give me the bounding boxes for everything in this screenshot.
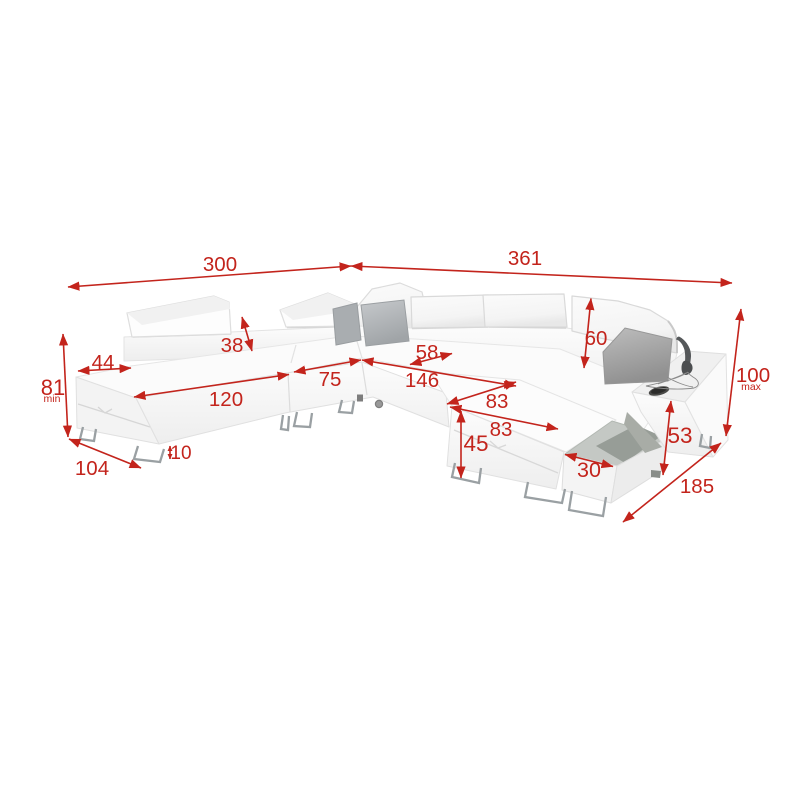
svg-text:185: 185: [680, 475, 714, 498]
svg-text:min: min: [44, 393, 61, 405]
svg-text:60: 60: [585, 327, 608, 350]
svg-text:104: 104: [75, 457, 109, 480]
svg-text:83: 83: [490, 418, 513, 441]
svg-text:max: max: [741, 381, 762, 393]
svg-text:30: 30: [577, 458, 601, 482]
svg-text:75: 75: [319, 368, 342, 391]
svg-text:44: 44: [92, 351, 115, 374]
svg-text:146: 146: [405, 369, 439, 392]
svg-text:10: 10: [170, 443, 191, 464]
svg-text:361: 361: [508, 247, 542, 270]
svg-text:300: 300: [203, 253, 237, 276]
svg-text:120: 120: [209, 388, 243, 411]
svg-text:53: 53: [667, 423, 692, 448]
svg-text:58: 58: [416, 341, 439, 364]
svg-text:45: 45: [463, 431, 488, 456]
svg-text:38: 38: [221, 334, 244, 357]
svg-text:83: 83: [486, 390, 509, 413]
